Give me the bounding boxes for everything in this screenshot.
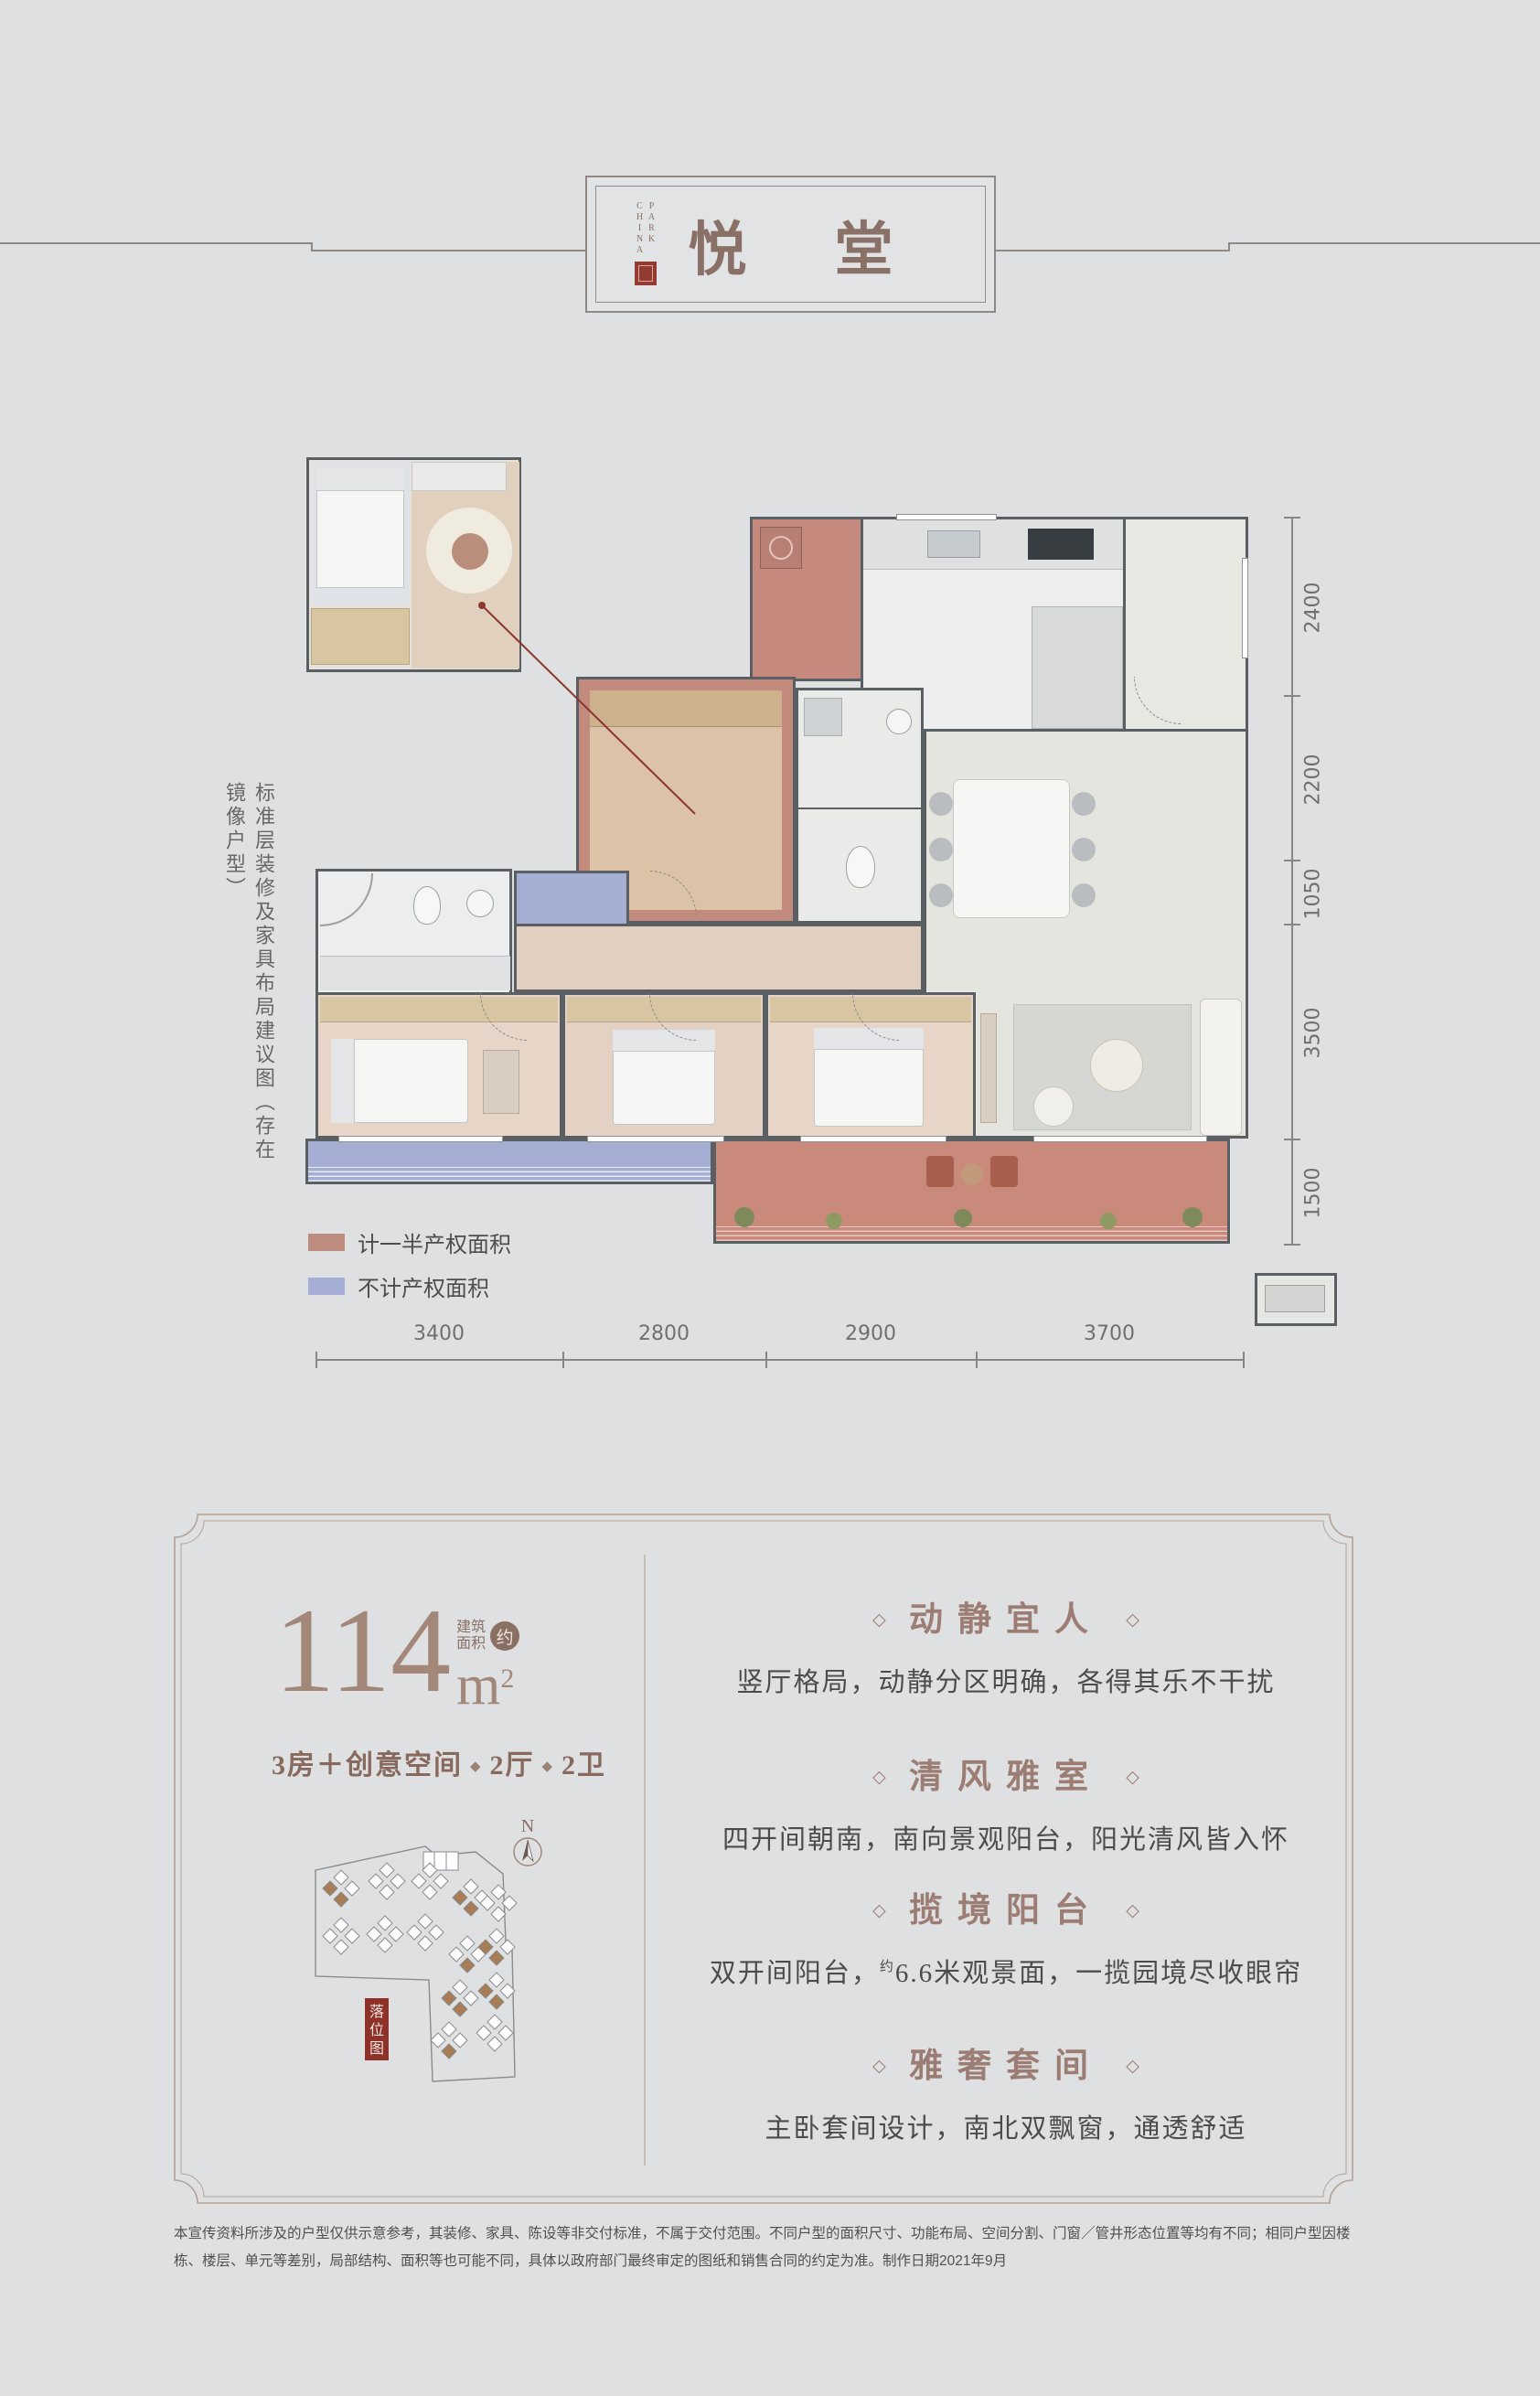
dim-bottom-value: 3400 <box>413 1322 465 1345</box>
dim-bottom-line <box>315 1359 1245 1361</box>
dim-right-line <box>1291 517 1293 1246</box>
coffee-table <box>1090 1039 1143 1092</box>
siteplan-building <box>323 1870 359 1907</box>
window <box>800 1136 946 1142</box>
dim-tick <box>765 1352 767 1368</box>
dim-bottom-value: 2800 <box>638 1322 690 1345</box>
legend-swatch-pink <box>308 1234 345 1251</box>
dim-tick <box>1284 924 1300 925</box>
legend-item-noncounted: 不计产权面积 <box>308 1270 511 1302</box>
bath2-sink-icon <box>886 709 912 734</box>
laundry-room-half-area <box>750 517 863 681</box>
dim-right-value: 2200 <box>1302 754 1325 806</box>
inset-chair <box>452 533 488 570</box>
dim-bottom-value: 2900 <box>845 1322 896 1345</box>
siteplan-building <box>369 1863 405 1899</box>
balcony-plant <box>1100 1213 1117 1229</box>
legend-label: 不计产权面积 <box>358 1270 489 1302</box>
diamond-separator-icon: ◆ <box>535 1760 562 1774</box>
diamond-icon: ◇ <box>1126 1901 1139 1920</box>
feature-desc: 双开间阳台，约6.6米观景面，一揽园境尽收眼帘 <box>658 1952 1353 1990</box>
seal-char: 位 <box>369 2022 384 2038</box>
window <box>1242 558 1248 658</box>
legend-label: 计一半产权面积 <box>358 1226 511 1258</box>
diamond-icon: ◇ <box>1126 1610 1139 1630</box>
bathroom-2 <box>796 688 924 924</box>
bed-pillow <box>613 1030 715 1052</box>
sofa <box>1200 999 1242 1136</box>
ac-platform <box>1255 1273 1337 1326</box>
diamond-icon: ◇ <box>872 1610 886 1630</box>
shower-icon <box>320 873 373 926</box>
stove-icon <box>1028 529 1094 560</box>
area-summary: 114 建筑 面积 约 m2 <box>274 1596 640 1710</box>
header-ornament-left-outer <box>0 242 313 244</box>
seal-char: 图 <box>369 2041 384 2057</box>
header-ornament-right-inner <box>992 250 1230 251</box>
approx-badge: 约 <box>490 1621 519 1651</box>
area-exponent: 2 <box>500 1663 514 1694</box>
bathroom-1 <box>315 869 512 997</box>
feature-item: ◇ 动静宜人 ◇ 竖厅格局，动静分区明确，各得其乐不干扰 <box>658 1591 1353 1699</box>
disclaimer-text: 本宣传资料所涉及的户型仅供示意参考，其装修、家具、陈设等非交付标准，不属于交付范… <box>174 2220 1377 2275</box>
plan-legend: 计一半产权面积 不计产权面积 <box>308 1226 511 1314</box>
south-balcony-noncounted <box>305 1139 713 1184</box>
balcony-plant <box>826 1213 842 1229</box>
floorplan-caption: 标准层装修及家具布局建议图（存在镜像户型） <box>219 782 278 1184</box>
washer-door-icon <box>769 536 793 560</box>
header-ornament-left-inner <box>311 250 585 251</box>
siteplan-building <box>367 1916 403 1952</box>
diamond-separator-icon: ◆ <box>463 1760 490 1774</box>
balcony-plant <box>734 1207 754 1227</box>
dim-right-value: 1050 <box>1302 869 1325 920</box>
armchair <box>1033 1086 1074 1127</box>
dining-chair <box>929 792 953 816</box>
legend-item-half-area: 计一半产权面积 <box>308 1226 511 1258</box>
legend-swatch-blue <box>308 1278 345 1295</box>
toilet-icon <box>846 846 875 888</box>
feature-item: ◇ 雅奢套间 ◇ 主卧套间设计，南北双飘窗，通透舒适 <box>658 2038 1353 2145</box>
dim-bottom-value: 3700 <box>1084 1322 1135 1345</box>
approx-superscript: 约 <box>880 1960 895 1974</box>
diamond-icon: ◇ <box>872 1901 886 1920</box>
dining-chair <box>929 883 953 907</box>
corridor <box>514 924 924 992</box>
siteplan-building <box>476 2015 513 2051</box>
seal-char: 落 <box>369 2004 384 2020</box>
bed-pillow <box>331 1039 355 1123</box>
area-unit: m2 <box>456 1654 519 1710</box>
siteplan-building <box>431 2022 467 2059</box>
dim-tick <box>1284 1139 1300 1140</box>
tagline-rooms: 3房＋创意空间 <box>272 1750 463 1781</box>
feature-title: 清风雅室 <box>909 1759 1103 1796</box>
north-arrow-icon <box>514 1838 541 1866</box>
dining-chair <box>1072 838 1096 861</box>
page-title: 悦 堂 <box>587 203 994 287</box>
creative-space-cabinet <box>590 690 782 727</box>
feature-desc: 主卧套间设计，南北双飘窗，通透舒适 <box>658 2107 1353 2145</box>
kitchen-island <box>1032 606 1123 729</box>
tv-cabinet <box>980 1013 997 1123</box>
feature-title: 动静宜人 <box>909 1601 1103 1639</box>
window <box>587 1136 724 1142</box>
layout-tagline: 3房＋创意空间◆2厅◆2卫 <box>229 1742 649 1782</box>
header-ornament-right-outer <box>1228 242 1540 244</box>
dim-tick <box>976 1352 978 1368</box>
feature-desc: 四开间朝南，南向景观阳台，阳光清风皆入怀 <box>658 1818 1353 1856</box>
dim-tick <box>562 1352 564 1368</box>
dim-right-value: 1500 <box>1302 1168 1325 1219</box>
title-plaque: CHINA PARK 悦 堂 <box>585 176 996 313</box>
diamond-icon: ◇ <box>872 2057 886 2076</box>
dim-tick <box>315 1352 317 1368</box>
utility-shelf <box>804 698 842 736</box>
feature-item: ◇ 清风雅室 ◇ 四开间朝南，南向景观阳台，阳光清风皆入怀 <box>658 1749 1353 1856</box>
bath1-sink-icon <box>466 890 494 917</box>
dim-tick <box>1284 695 1300 697</box>
area-value: 114 <box>274 1596 451 1706</box>
diamond-icon: ◇ <box>1126 2057 1139 2076</box>
dim-right-value: 2400 <box>1302 583 1325 634</box>
vanity-counter <box>320 956 510 990</box>
siteplan-building <box>478 1929 515 1965</box>
siteplan-building <box>453 1879 489 1916</box>
ac-unit-icon <box>1265 1285 1325 1312</box>
siteplan-building <box>478 1973 515 2009</box>
north-label: N <box>521 1816 534 1836</box>
balcony-plant <box>954 1209 972 1227</box>
dim-tick <box>1284 1244 1300 1246</box>
siteplan-building <box>480 1885 517 1921</box>
inset-desk <box>412 462 507 491</box>
balcony-table <box>961 1163 983 1185</box>
poster-page: CHINA PARK 悦 堂 标准层装修及家具布局建议图（存在镜像户型） <box>0 0 1540 2396</box>
siteplan-map: 落 位 图 N <box>288 1797 572 2108</box>
inset-pillow <box>316 467 404 491</box>
balcony-plant <box>1182 1207 1203 1227</box>
feature-title: 雅奢套间 <box>909 2048 1103 2085</box>
tagline-halls: 2厅 <box>490 1750 535 1781</box>
bedside-table <box>483 1050 519 1114</box>
inset-wardrobe <box>311 608 410 665</box>
title-char-1: 悦 <box>689 203 747 287</box>
kitchen-sink-icon <box>927 530 980 558</box>
dim-tick <box>1284 860 1300 861</box>
dim-tick <box>1284 517 1300 519</box>
siteplan-building <box>442 1980 478 2016</box>
dining-table <box>953 779 1070 918</box>
tagline-baths: 2卫 <box>561 1750 606 1781</box>
bath2-divider <box>798 808 921 809</box>
toilet-icon <box>413 886 441 925</box>
inset-creative-room <box>306 457 521 672</box>
view-balcony-half-area <box>713 1139 1230 1244</box>
window <box>1033 1136 1207 1142</box>
siteplan-building <box>323 1918 359 1954</box>
dim-tick <box>1243 1352 1245 1368</box>
feature-title: 揽境阳台 <box>909 1892 1103 1930</box>
balcony-chair <box>926 1156 954 1187</box>
title-char-2: 堂 <box>835 203 893 287</box>
balcony-chair <box>990 1156 1018 1187</box>
window <box>896 514 997 520</box>
feature-item: ◇ 揽境阳台 ◇ 双开间阳台，约6.6米观景面，一揽园境尽收眼帘 <box>658 1882 1353 1990</box>
dining-chair <box>929 838 953 861</box>
siteplan-building <box>407 1914 444 1951</box>
window <box>338 1136 503 1142</box>
dining-chair <box>1072 883 1096 907</box>
diamond-icon: ◇ <box>1126 1768 1139 1787</box>
diamond-icon: ◇ <box>872 1768 886 1787</box>
bed-pillow <box>814 1028 924 1050</box>
siteplan-building <box>449 1936 486 1973</box>
dim-right-value: 3500 <box>1302 1008 1325 1059</box>
feature-desc: 竖厅格局，动静分区明确，各得其乐不干扰 <box>658 1661 1353 1699</box>
dining-chair <box>1072 792 1096 816</box>
area-label: 建筑 面积 <box>456 1620 486 1653</box>
